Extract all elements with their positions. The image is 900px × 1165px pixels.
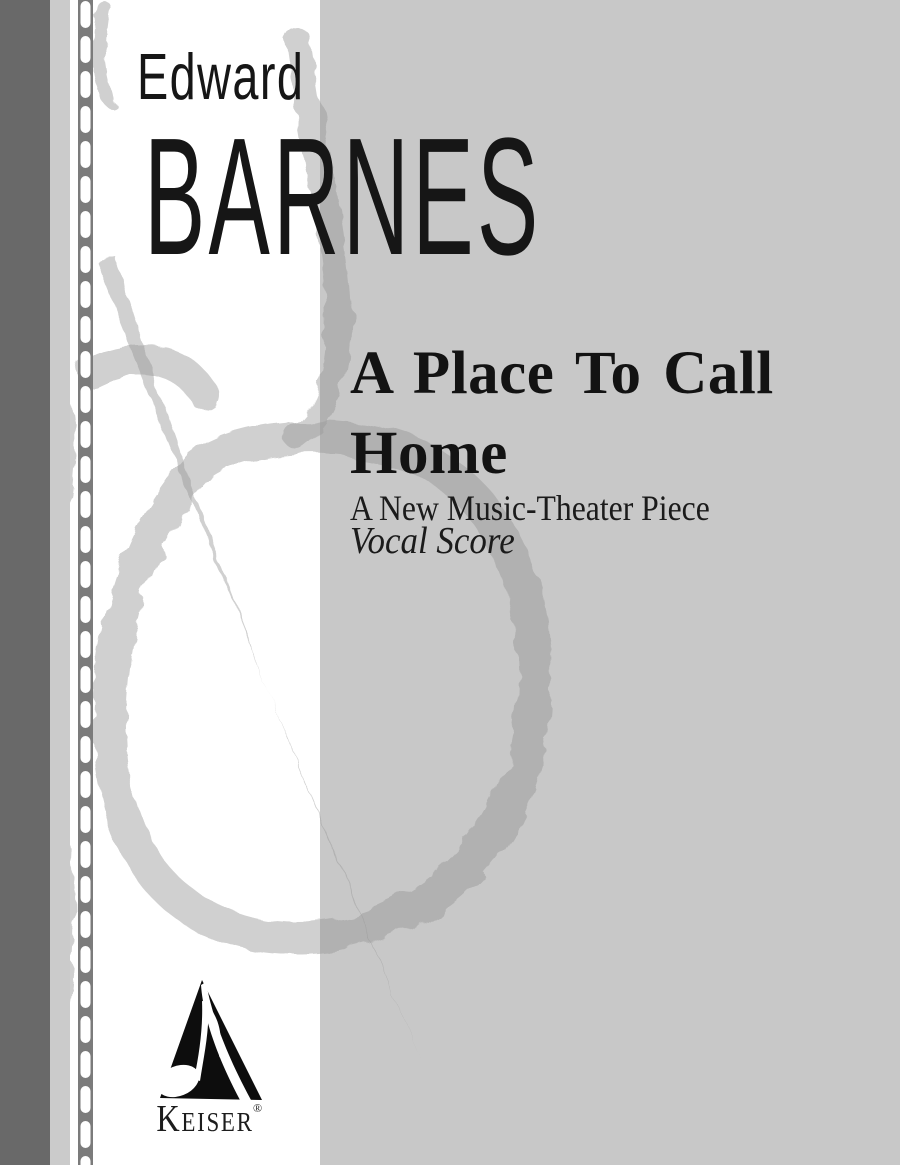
work-title: A Place To Call Home <box>350 334 850 494</box>
publisher-triangle-note-logo-icon <box>130 953 280 1103</box>
score-cover-page: { "page": { "kind": "vocal score cover",… <box>0 0 900 1165</box>
work-edition-label: Vocal Score <box>350 521 515 563</box>
publisher-name: Keiser <box>141 1100 269 1138</box>
stitch-dashed-line-icon <box>0 0 110 1165</box>
composer-first-name: Edward <box>137 44 304 109</box>
registered-trademark-symbol: ® <box>253 1102 262 1114</box>
composer-last-name: BARNES <box>144 114 542 281</box>
